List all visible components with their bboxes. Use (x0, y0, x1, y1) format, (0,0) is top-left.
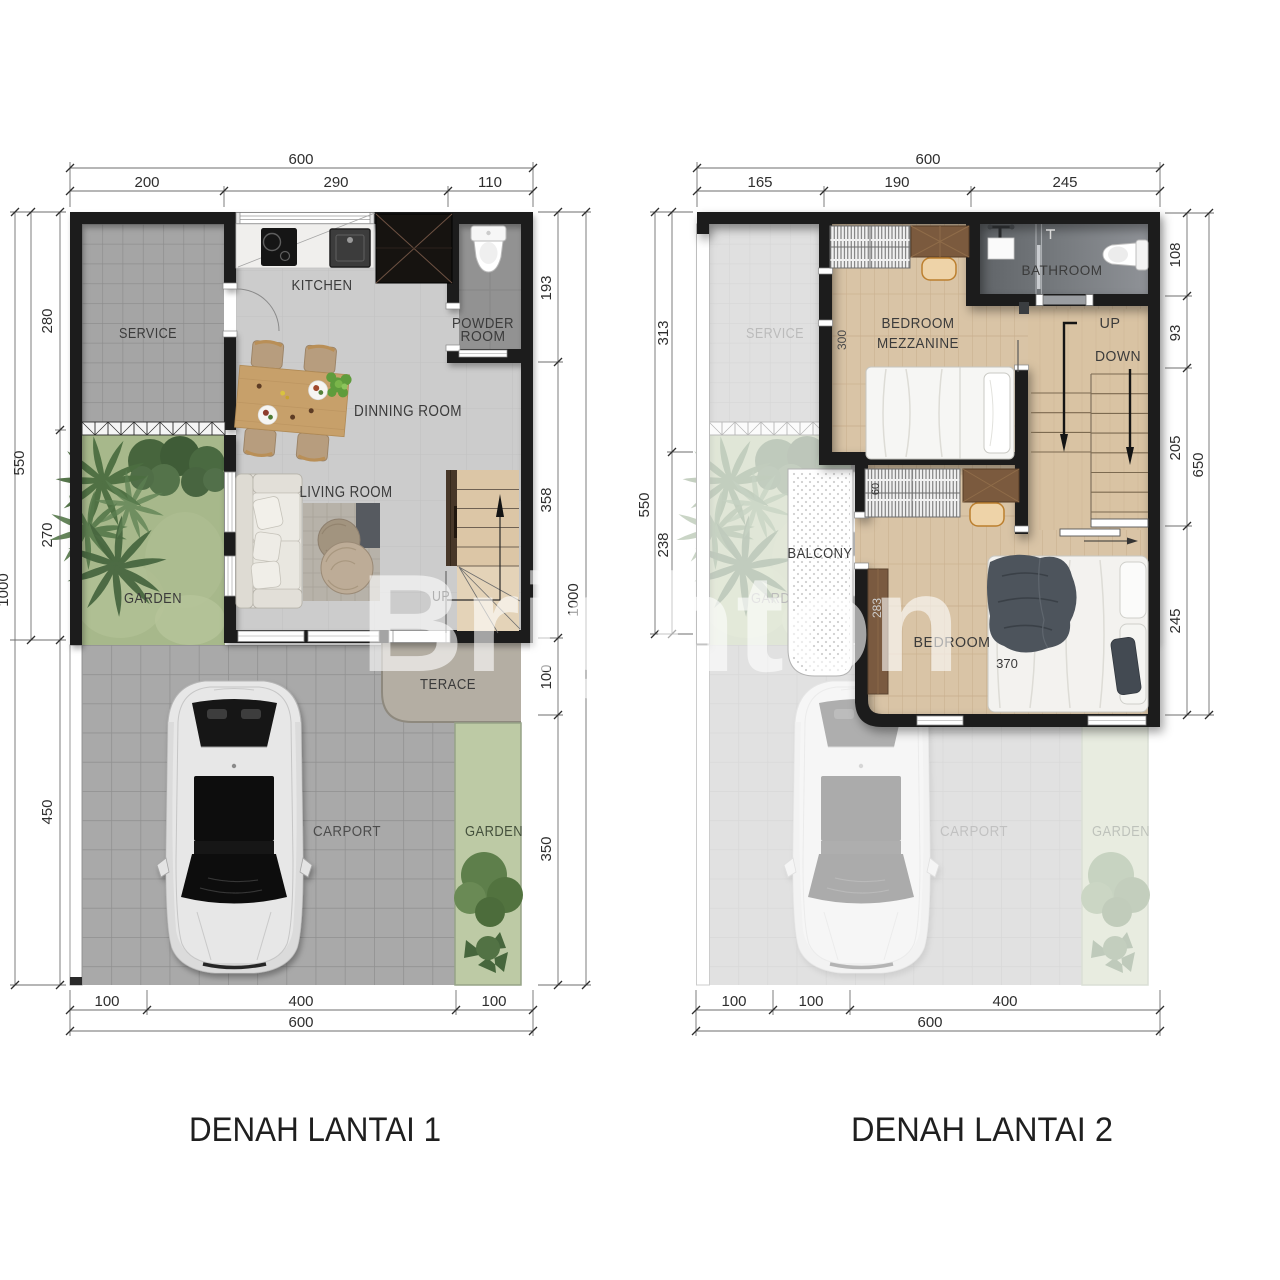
svg-text:100: 100 (94, 993, 119, 1010)
svg-text:400: 400 (992, 993, 1017, 1010)
svg-text:110: 110 (478, 174, 502, 191)
svg-text:DINNING ROOM: DINNING ROOM (354, 403, 462, 420)
svg-text:LIVING ROOM: LIVING ROOM (300, 484, 393, 501)
svg-text:280: 280 (39, 308, 56, 333)
svg-text:SERVICE: SERVICE (119, 325, 177, 342)
svg-text:200: 200 (134, 174, 159, 191)
svg-text:DENAH LANTAI 2: DENAH LANTAI 2 (851, 1111, 1113, 1149)
svg-text:KITCHEN: KITCHEN (292, 277, 353, 294)
svg-text:290: 290 (323, 174, 348, 191)
svg-text:BEDROOM: BEDROOM (882, 315, 955, 332)
svg-text:205: 205 (1167, 435, 1184, 460)
svg-text:313: 313 (655, 320, 672, 345)
svg-text:270: 270 (39, 522, 56, 547)
svg-text:100: 100 (481, 993, 506, 1010)
svg-text:CARPORT: CARPORT (313, 823, 381, 840)
svg-text:245: 245 (1052, 174, 1077, 191)
svg-text:550: 550 (636, 492, 653, 517)
svg-text:165: 165 (747, 174, 772, 191)
svg-text:600: 600 (917, 1014, 942, 1031)
svg-text:DENAH LANTAI 1: DENAH LANTAI 1 (189, 1111, 441, 1149)
svg-text:450: 450 (39, 799, 56, 824)
svg-text:600: 600 (288, 151, 313, 168)
svg-text:300: 300 (835, 330, 849, 350)
svg-text:108: 108 (1167, 242, 1184, 267)
svg-text:600: 600 (915, 151, 940, 168)
svg-text:1000: 1000 (0, 573, 12, 606)
svg-text:ROOM: ROOM (461, 329, 506, 345)
svg-text:100: 100 (798, 993, 823, 1010)
svg-text:Brighton: Brighton (360, 546, 960, 701)
svg-text:UP: UP (1100, 315, 1121, 332)
svg-text:GARDEN: GARDEN (124, 591, 182, 607)
svg-text:DOWN: DOWN (1095, 348, 1141, 365)
svg-text:350: 350 (538, 836, 555, 861)
svg-text:GARDEN: GARDEN (465, 824, 523, 840)
svg-text:550: 550 (11, 450, 28, 475)
svg-text:60: 60 (870, 483, 882, 495)
svg-text:400: 400 (288, 993, 313, 1010)
svg-text:358: 358 (538, 487, 555, 512)
svg-text:193: 193 (538, 275, 555, 300)
svg-text:BATHROOM: BATHROOM (1022, 262, 1103, 278)
svg-text:650: 650 (1190, 452, 1207, 477)
svg-text:190: 190 (884, 174, 909, 191)
svg-text:100: 100 (721, 993, 746, 1010)
svg-text:370: 370 (996, 656, 1018, 671)
svg-text:MEZZANINE: MEZZANINE (877, 335, 959, 352)
svg-text:93: 93 (1167, 325, 1184, 342)
svg-text:245: 245 (1167, 608, 1184, 633)
svg-text:600: 600 (288, 1014, 313, 1031)
